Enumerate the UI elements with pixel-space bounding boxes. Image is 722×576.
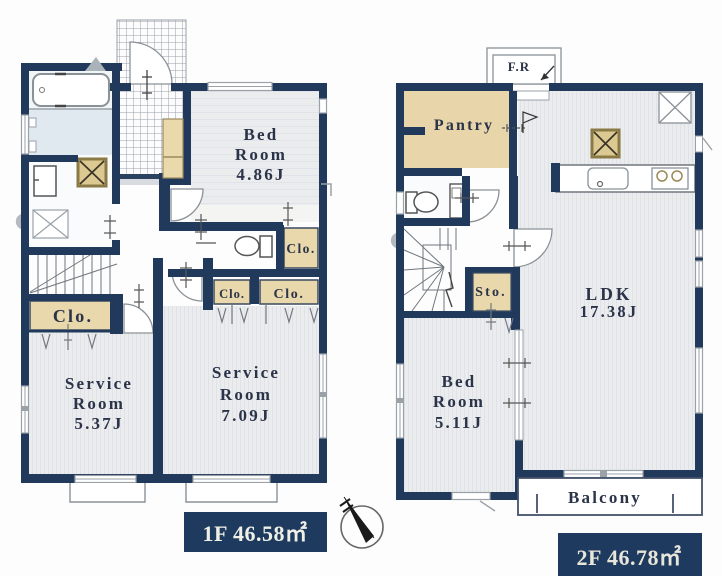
svg-text:F.R: F.R [508,59,530,74]
svg-text:Room: Room [220,385,272,404]
svg-text:17.38J: 17.38J [580,302,639,321]
svg-text:Clo.: Clo. [53,306,93,326]
svg-text:LDK: LDK [586,284,633,304]
svg-text:Room: Room [73,394,125,413]
svg-text:Service: Service [65,374,133,393]
svg-text:Room: Room [235,145,287,164]
svg-text:Bed: Bed [442,372,477,391]
svg-text:2F 46.78㎡: 2F 46.78㎡ [576,545,681,570]
svg-text:Clo.: Clo. [274,287,305,302]
svg-text:Pantry: Pantry [434,117,494,134]
svg-text:Clo.: Clo. [286,241,315,256]
svg-text:Room: Room [433,392,485,411]
svg-text:5.37J: 5.37J [74,414,123,433]
svg-text:1F 46.58㎡: 1F 46.58㎡ [202,521,307,546]
svg-text:7.09J: 7.09J [221,406,270,425]
svg-text:Clo.: Clo. [219,287,245,301]
svg-text:Balcony: Balcony [568,488,642,507]
svg-text:Bed: Bed [244,125,279,144]
svg-text:Sto.: Sto. [475,285,507,300]
svg-text:5.11J: 5.11J [435,413,483,432]
svg-text:Service: Service [212,363,280,382]
svg-text:4.86J: 4.86J [236,165,285,184]
